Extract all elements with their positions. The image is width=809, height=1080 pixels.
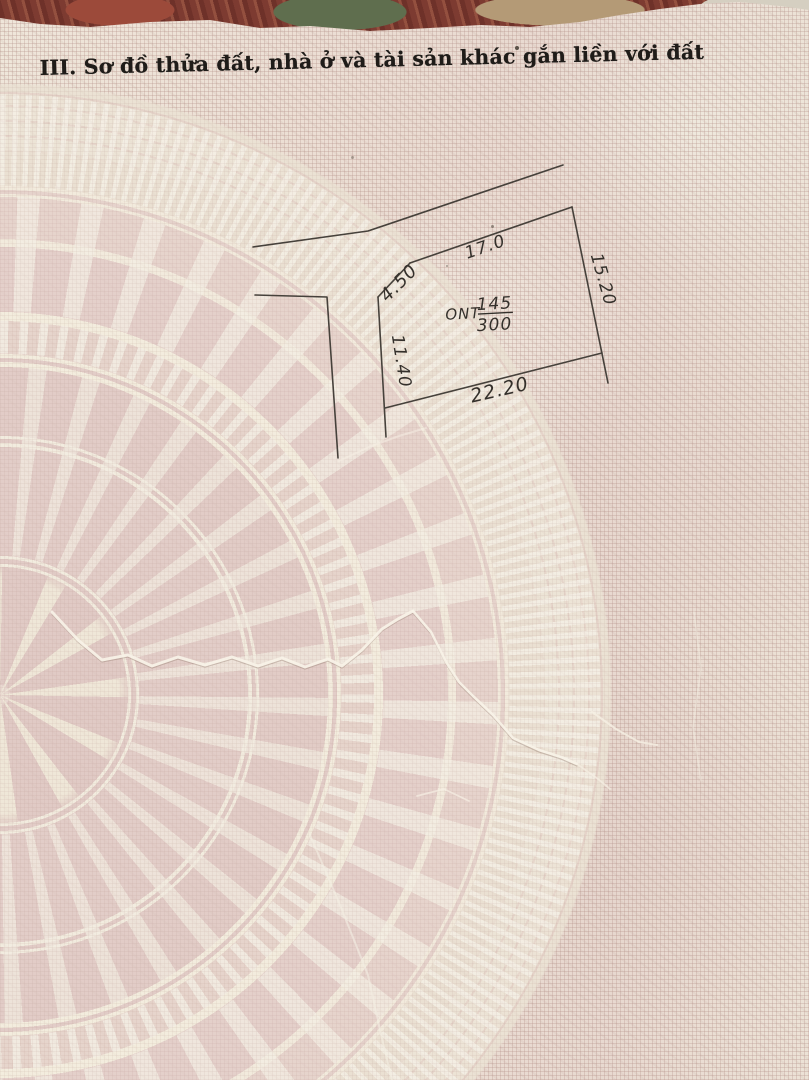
edge-length-left: 11.40 bbox=[387, 333, 415, 389]
road-boundary-line bbox=[253, 165, 563, 247]
edge-length-bottom: 22.20 bbox=[468, 373, 531, 408]
paper-speck bbox=[515, 46, 519, 50]
paper-speck bbox=[351, 156, 354, 159]
plot-edge-left bbox=[378, 297, 386, 437]
edge-length-top: 17.0 bbox=[462, 231, 508, 264]
plot-area: 300 bbox=[476, 314, 512, 336]
plot-sketch: 17.0 15.20 4.50 11.40 22.20 ONT 145 300 bbox=[0, 0, 809, 1080]
photographed-land-certificate-page: 17.0 15.20 4.50 11.40 22.20 ONT 145 300 … bbox=[0, 0, 809, 1080]
paper-speck bbox=[446, 265, 448, 267]
neighbor-boundary-line bbox=[255, 295, 338, 458]
paper-speck bbox=[491, 225, 494, 228]
plot-number: 145 bbox=[476, 293, 512, 315]
edge-length-upper-left: 4.50 bbox=[376, 260, 422, 306]
certificate-paper-sheet: 17.0 15.20 4.50 11.40 22.20 ONT 145 300 … bbox=[0, 0, 809, 1080]
